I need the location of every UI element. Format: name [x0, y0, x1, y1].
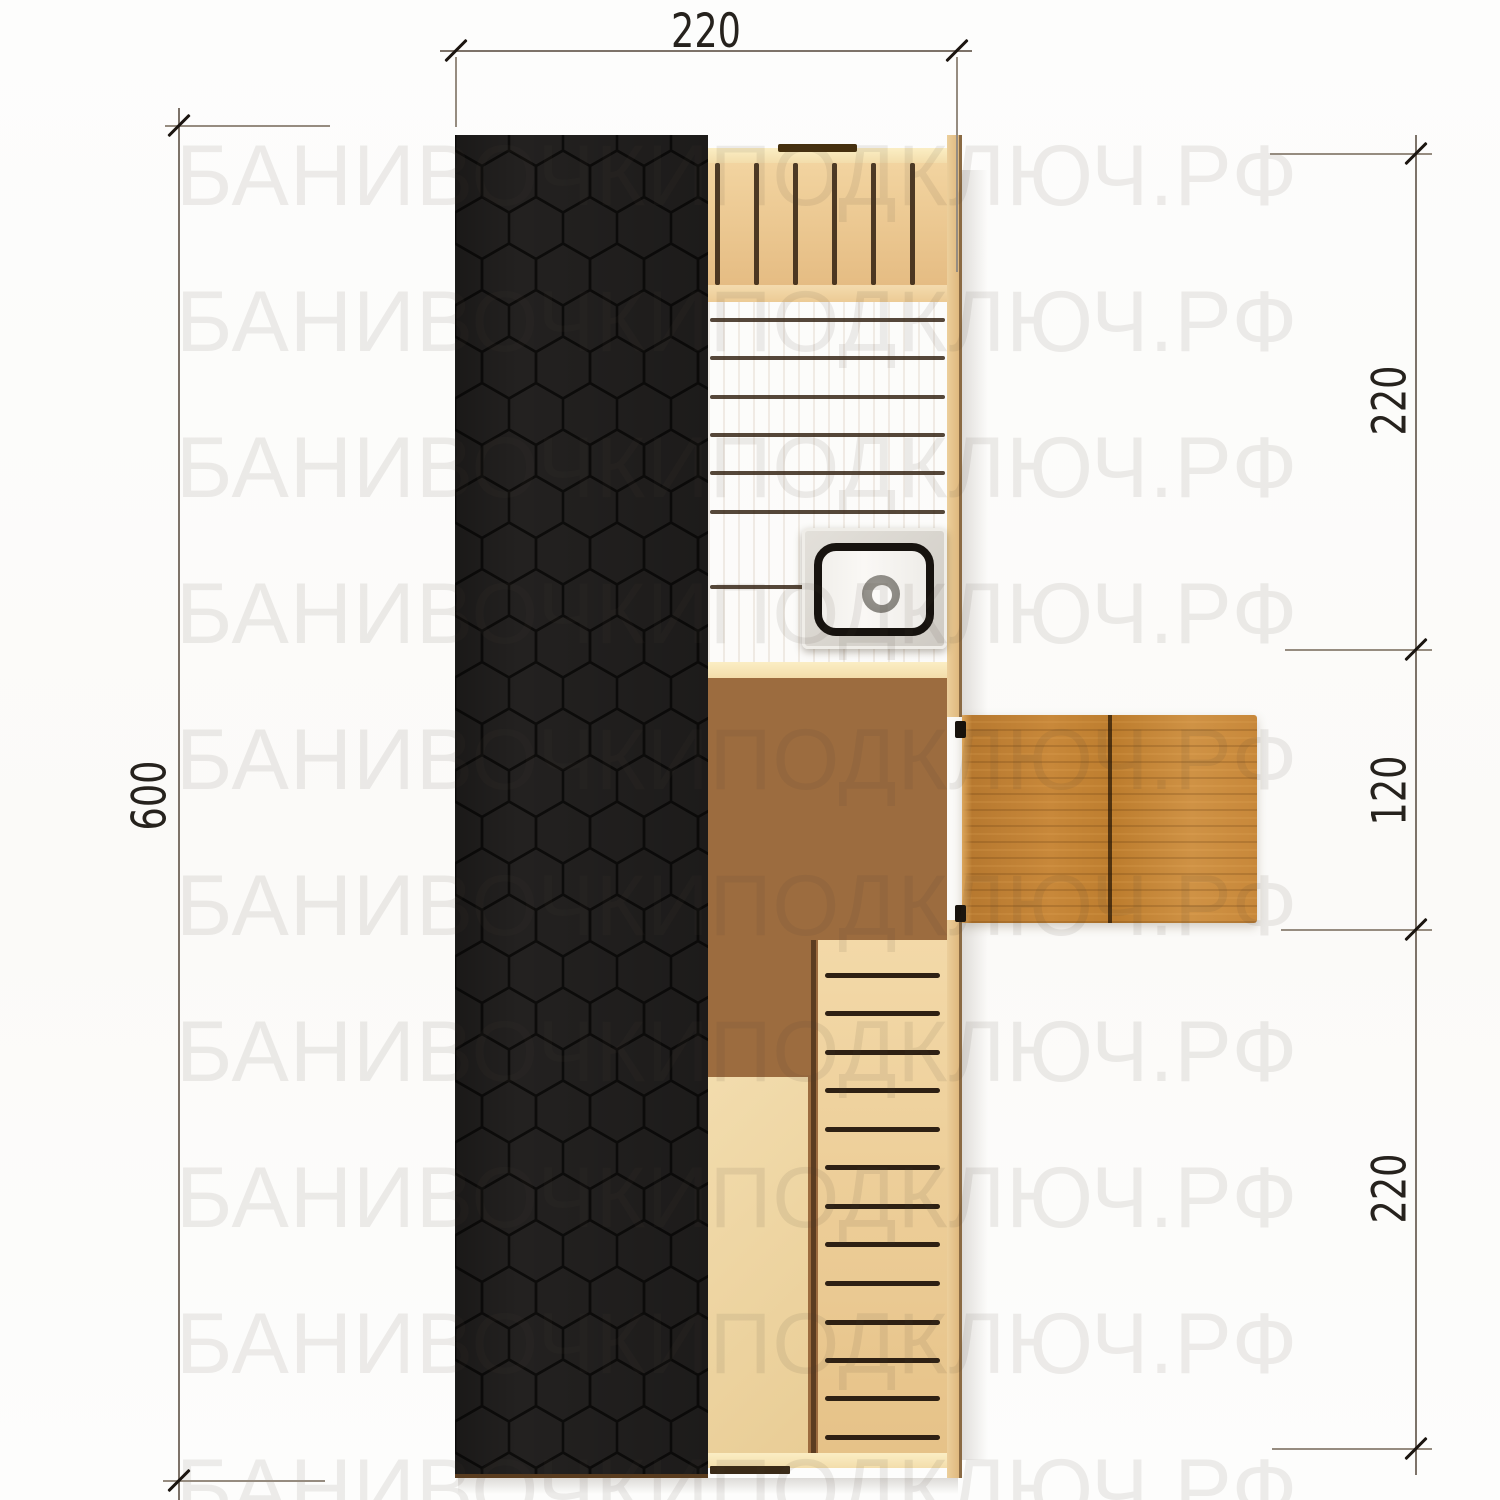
plank-gap	[710, 318, 945, 322]
dim-right-ext-4	[1272, 1448, 1432, 1450]
dim-top-ext-left	[455, 57, 457, 127]
stove-chimney-pipe	[872, 585, 892, 605]
slat-gap	[825, 1435, 940, 1440]
slat-gap	[825, 1165, 940, 1170]
dim-right-ext-1	[1270, 153, 1432, 155]
door-hinge-bottom	[955, 905, 966, 922]
deck-seam	[1108, 715, 1112, 923]
dim-left-line	[178, 108, 180, 1500]
slat-gap	[825, 1011, 940, 1016]
floor-plan-canvas: 220 600 220 120 220 БАНИВОЧКИПОДКЛЮЧ.РФБ…	[0, 0, 1500, 1500]
dim-right-ext-3	[1281, 929, 1432, 931]
dim-left-ext-top	[165, 125, 330, 127]
dim-right-label-3: 220	[1367, 1126, 1414, 1251]
slat-gap	[825, 1320, 940, 1325]
steam-room-upper-bench	[708, 163, 947, 285]
dim-left-ext-bottom	[163, 1480, 325, 1482]
slat-gap	[825, 1204, 940, 1209]
door-hinge-top	[955, 721, 966, 738]
plank-gap	[710, 356, 945, 360]
slat-gap	[825, 973, 940, 978]
partition-wall	[708, 662, 947, 678]
plank-gap	[710, 395, 945, 399]
roof-membrane	[455, 135, 708, 1478]
dim-right-ext-2	[1285, 649, 1432, 651]
slat-gap	[825, 1127, 940, 1132]
entrance-deck	[962, 715, 1257, 923]
plank-gap	[871, 163, 876, 285]
bottom-threshold	[710, 1466, 790, 1474]
lower-room-bench	[708, 1077, 808, 1453]
plank-gap	[715, 163, 720, 285]
slat-gap	[825, 1396, 940, 1401]
top-wall-vent	[778, 144, 857, 152]
slatted-walkway	[818, 940, 947, 1453]
slat-gap	[825, 1050, 940, 1055]
plank-gap	[754, 163, 759, 285]
walkway-edge-gap	[811, 940, 816, 1453]
plank-gap	[710, 471, 945, 475]
dim-right-label-1: 220	[1367, 338, 1414, 463]
slat-gap	[825, 1281, 940, 1286]
dim-top-ext-right	[956, 57, 958, 272]
bench-front-edge	[708, 285, 947, 302]
right-wall-upper	[947, 135, 962, 717]
steam-room-lower-bench	[708, 302, 947, 514]
building-shadow-bottom	[458, 1478, 958, 1494]
slat-gap	[825, 1088, 940, 1093]
dim-right-label-2: 120	[1367, 728, 1414, 853]
deck-edge-highlight	[962, 715, 972, 923]
dim-left-label: 600	[127, 733, 174, 858]
slat-gap	[825, 1358, 940, 1363]
plank-gap	[793, 163, 798, 285]
stove	[802, 528, 947, 649]
plank-gap	[832, 163, 837, 285]
plank-gap	[910, 163, 915, 285]
dim-top-label: 220	[659, 8, 753, 55]
slat-gap	[825, 1242, 940, 1247]
right-wall-lower	[947, 920, 962, 1478]
plank-gap	[710, 433, 945, 437]
